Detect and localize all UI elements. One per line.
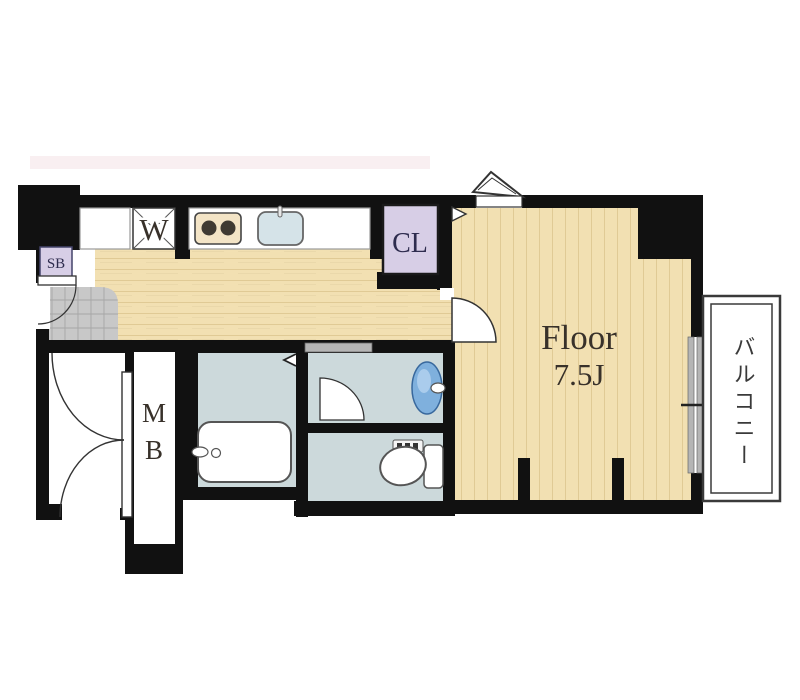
wall-left-foot xyxy=(36,504,62,520)
wall-bath-bottom xyxy=(176,487,302,500)
main-room-name: Floor xyxy=(541,318,617,357)
bay-window-base xyxy=(476,196,522,207)
bathtub-faucet xyxy=(192,447,208,457)
washbasin-highlight xyxy=(417,369,431,393)
washroom-sliding-door xyxy=(305,343,372,352)
wall-toilet-bottom xyxy=(294,501,455,516)
floor-plan-page: M B SB W CL xyxy=(0,0,800,700)
meter-box-label-b: B xyxy=(145,435,163,465)
wall-top-left-block xyxy=(18,185,80,250)
wall-stub-1 xyxy=(518,458,530,502)
wall-room-bottom xyxy=(443,500,703,514)
wall-wet-right xyxy=(443,342,455,516)
bathtub-knob xyxy=(212,449,221,458)
toilet-tank xyxy=(424,445,443,488)
wall-hallway-bottom xyxy=(36,340,455,353)
washbasin-faucet xyxy=(431,383,445,393)
shoe-box-label: SB xyxy=(47,256,65,272)
floor-plan-svg: M B SB W CL xyxy=(0,0,800,700)
wall-right-lower xyxy=(691,472,703,514)
kitchen-faucet xyxy=(278,206,282,217)
closet-label: CL xyxy=(392,228,428,259)
stove-burner-left xyxy=(202,221,217,236)
balcony-label: バルコニー xyxy=(730,336,755,471)
wall-top-right-run xyxy=(522,195,640,208)
wall-washroom-toilet xyxy=(296,423,455,433)
closet: CL xyxy=(383,205,438,274)
stove-burner-right xyxy=(221,221,236,236)
wall-right-upper xyxy=(691,208,703,338)
storage-door-panel xyxy=(122,372,132,517)
entrance-door-leaf xyxy=(38,276,76,285)
wall-stub-2 xyxy=(612,458,624,502)
meter-box-label-m: M xyxy=(142,398,166,428)
kitchen: W xyxy=(80,206,370,249)
kitchen-cabinet xyxy=(80,208,130,249)
watermark-artifact xyxy=(30,156,430,169)
meter-box: M B xyxy=(134,352,175,544)
main-room-size: 7.5J xyxy=(554,357,605,392)
entrance-door-gap xyxy=(34,283,50,329)
washer-label: W xyxy=(139,212,169,247)
wall-washer-kitchen xyxy=(175,202,190,259)
